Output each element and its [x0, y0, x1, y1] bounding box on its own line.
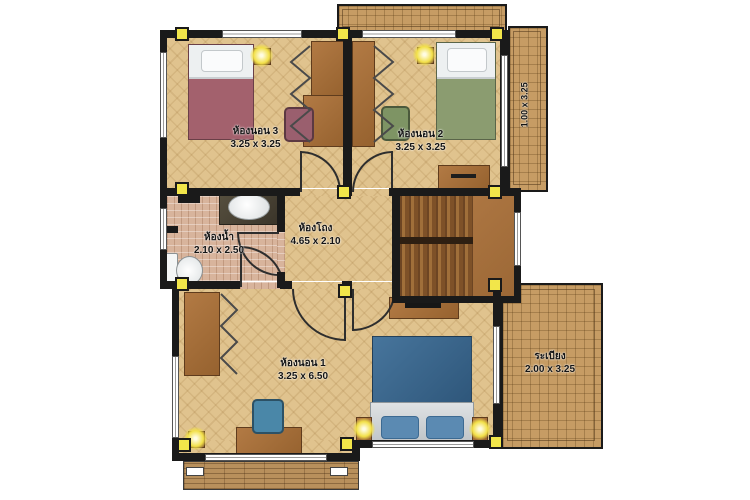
room-name: ห้องน้ำ — [169, 231, 269, 244]
column-marker — [340, 437, 354, 451]
column-marker — [175, 27, 189, 41]
wardrobe-hanger-symbols — [0, 0, 750, 500]
room-label-bedroom3: ห้องนอน 3 3.25 x 3.25 — [203, 125, 308, 151]
column-marker — [175, 182, 189, 196]
column-marker — [490, 27, 504, 41]
room-name: ห้องโถง — [263, 222, 368, 235]
room-size: 1.00 x 3.25 — [520, 82, 532, 127]
shower-partition-wall — [178, 196, 200, 203]
column-marker — [177, 438, 191, 452]
wall — [343, 30, 352, 196]
window — [172, 356, 179, 438]
room-size: 4.65 x 2.10 — [263, 235, 368, 248]
room-label-bathroom: ห้องน้ำ 2.10 x 2.50 — [169, 231, 269, 257]
room-label-balcony: ระเบียง 2.00 x 3.25 — [500, 350, 600, 376]
room-label-bedroom1: ห้องนอน 1 3.25 x 6.50 — [248, 357, 358, 383]
wall — [392, 296, 521, 303]
column-marker — [338, 284, 352, 298]
room-size: 2.00 x 3.25 — [500, 363, 600, 376]
window — [160, 52, 167, 138]
column-marker — [488, 185, 502, 199]
wall — [392, 188, 400, 303]
room-name: ห้องนอน 1 — [248, 357, 358, 370]
room-name: ห้องนอน 3 — [203, 125, 308, 138]
room-label-bedroom2: ห้องนอน 2 3.25 x 3.25 — [368, 128, 473, 154]
room-size: 3.25 x 3.25 — [368, 141, 473, 154]
window — [372, 441, 474, 448]
floor-plan: ห้องนอน 3 3.25 x 3.25 ห้องนอน 2 3.25 x 3… — [0, 0, 750, 500]
room-label-side-balcony: 1.00 x 3.25 — [496, 60, 556, 150]
column-marker — [489, 435, 503, 449]
column-marker — [336, 27, 350, 41]
room-size: 3.25 x 6.50 — [248, 370, 358, 383]
window — [493, 326, 500, 404]
column-marker — [337, 185, 351, 199]
room-size: 2.10 x 2.50 — [169, 244, 269, 257]
window — [205, 454, 327, 461]
wall — [160, 30, 510, 38]
room-name: ระเบียง — [500, 350, 600, 363]
room-name: ห้องนอน 2 — [368, 128, 473, 141]
window — [514, 212, 521, 266]
window — [362, 30, 456, 38]
room-size: 3.25 x 3.25 — [203, 138, 308, 151]
column-marker — [488, 278, 502, 292]
column-marker — [175, 277, 189, 291]
room-label-hall: ห้องโถง 4.65 x 2.10 — [263, 222, 368, 248]
window — [160, 208, 167, 250]
window — [222, 30, 302, 38]
hanger-zigzag — [221, 294, 237, 374]
wall — [280, 281, 292, 289]
